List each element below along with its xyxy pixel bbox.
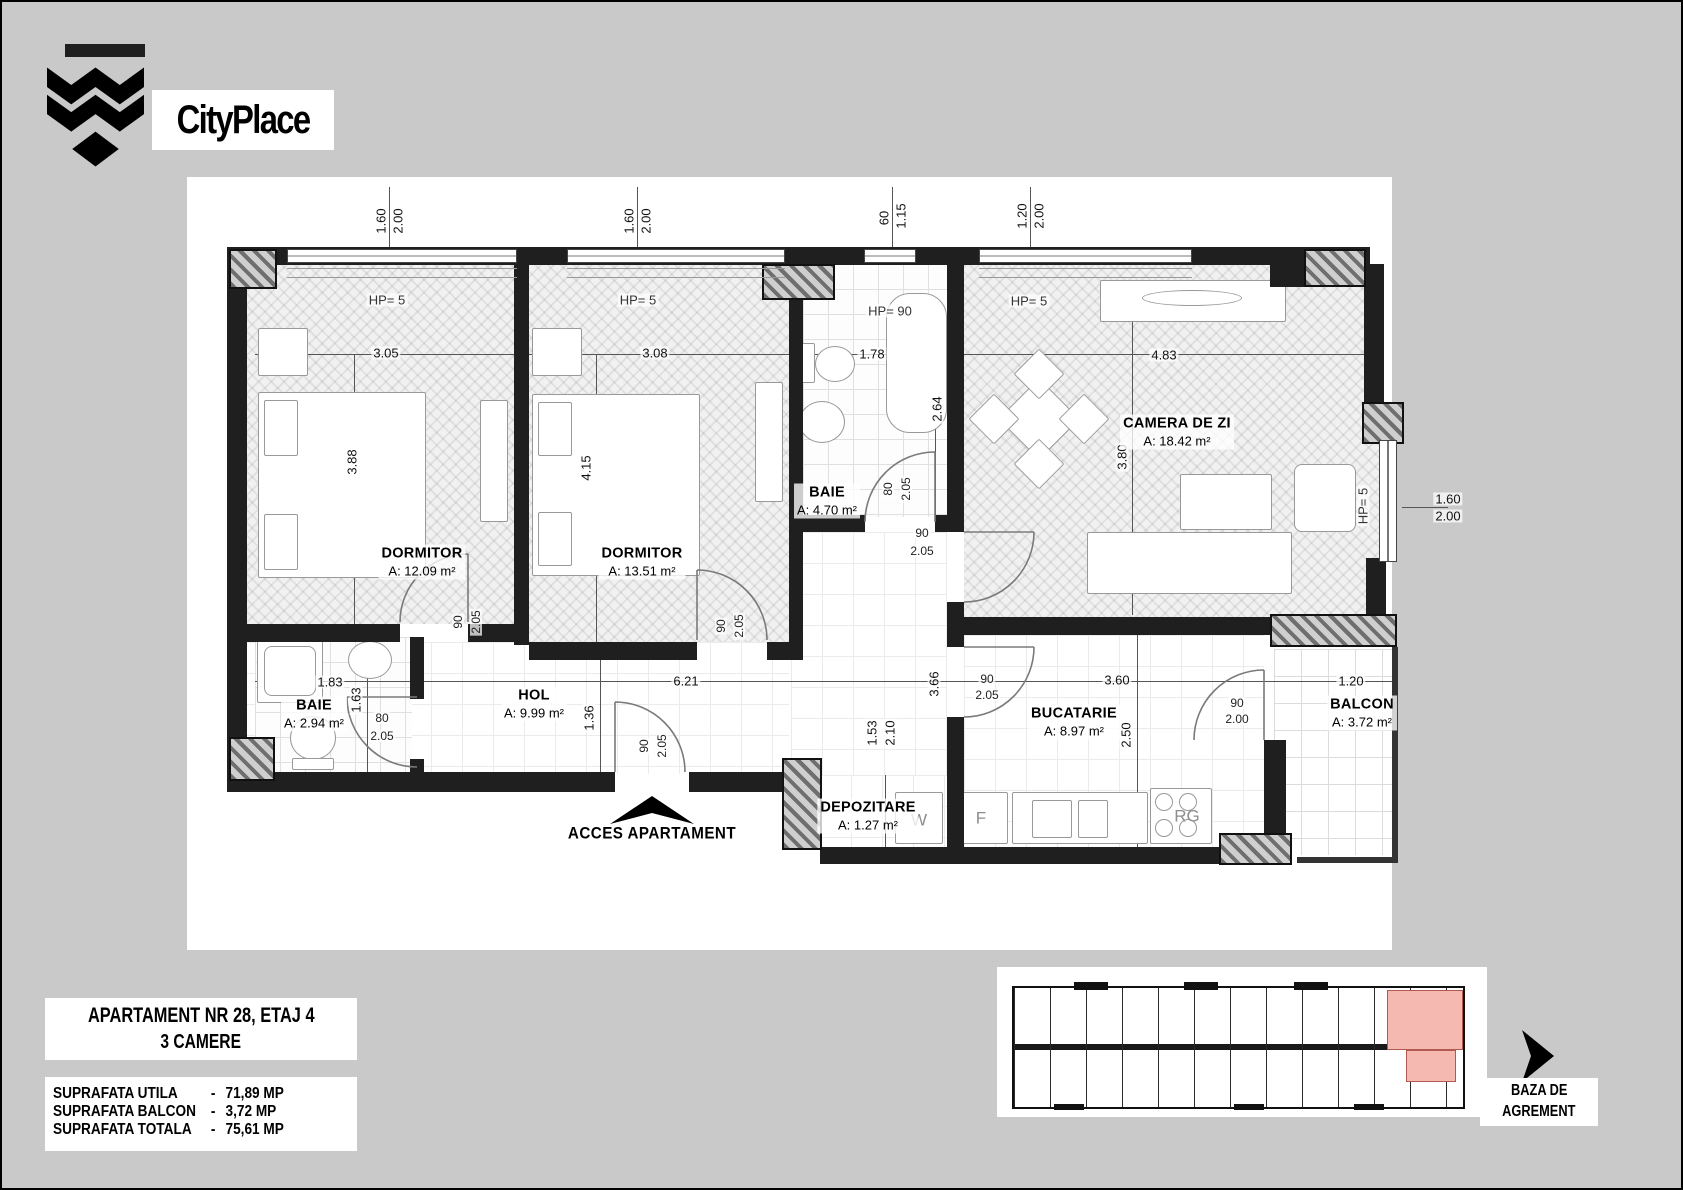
area-separator: - [201, 1103, 226, 1121]
key-plan-wall [1054, 1104, 1084, 1110]
caption-line: AGREMENT [1502, 1102, 1575, 1123]
key-plan-wall [1294, 982, 1328, 990]
key-plan-wall [1074, 982, 1108, 990]
apartment-subtitle: 3 CAMERE [161, 1031, 242, 1054]
area-value: 3,72 MP [225, 1103, 276, 1121]
key-plan-building [1012, 986, 1465, 1109]
areas-table: SUPRAFATA UTILA - 71,89 MP SUPRAFATA BAL… [45, 1077, 357, 1151]
area-row: SUPRAFATA BALCON - 3,72 MP [53, 1103, 321, 1121]
area-value: 75,61 MP [225, 1121, 283, 1139]
key-plan-wall [1354, 1104, 1384, 1110]
area-separator: - [201, 1121, 226, 1139]
access-arrow-icon [610, 796, 694, 824]
floor-plan-page: CityPlace [0, 0, 1683, 1190]
key-plan-highlighted-unit [1387, 990, 1463, 1050]
area-separator: - [201, 1085, 226, 1103]
key-plan-wall [1234, 1104, 1264, 1110]
area-row: SUPRAFATA UTILA - 71,89 MP [53, 1085, 321, 1103]
key-plan-highlighted-unit [1406, 1050, 1456, 1082]
area-value: 71,89 MP [225, 1085, 283, 1103]
area-row: SUPRAFATA TOTALA - 75,61 MP [53, 1121, 321, 1139]
area-label: SUPRAFATA UTILA [53, 1085, 201, 1103]
apartment-title-box: APARTAMENT NR 28, ETAJ 4 3 CAMERE [45, 998, 357, 1060]
key-plan-wall [1184, 982, 1218, 990]
key-plan-arrow-icon [1522, 1030, 1554, 1082]
access-label: ACCES APARTAMENT [568, 825, 736, 844]
area-label: SUPRAFATA BALCON [53, 1103, 201, 1121]
apartment-title: APARTAMENT NR 28, ETAJ 4 [88, 1004, 315, 1028]
area-label: SUPRAFATA TOTALA [53, 1121, 201, 1139]
key-plan-caption: BAZA DE AGREMENT [1480, 1078, 1598, 1126]
caption-line: BAZA DE [1511, 1081, 1567, 1102]
